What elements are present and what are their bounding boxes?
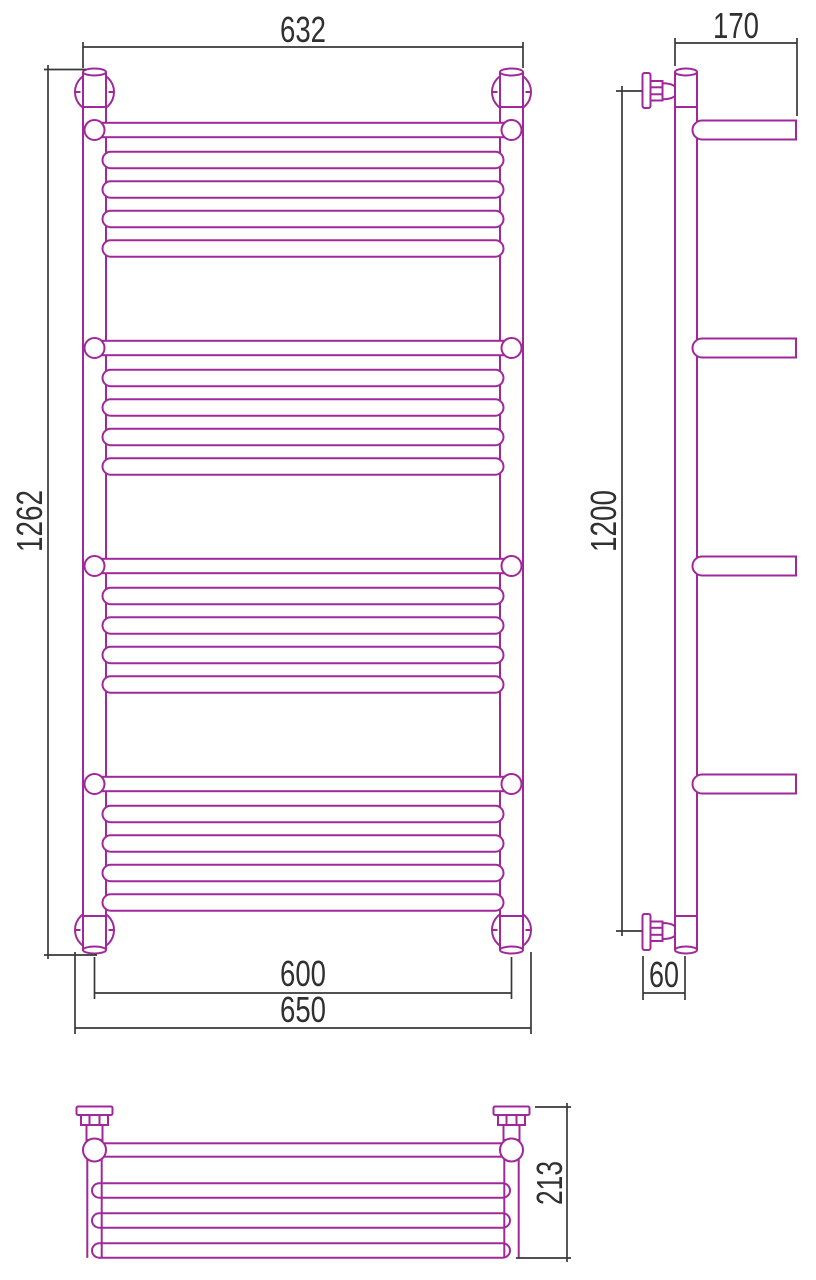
shelf-cross-bar bbox=[92, 1183, 510, 1197]
valve-hex-nut bbox=[651, 922, 663, 942]
shelf-bar-end bbox=[85, 774, 105, 794]
wall-flange bbox=[494, 1107, 530, 1116]
dim-label-side-valve: 60 bbox=[649, 954, 679, 995]
pipe-end bbox=[500, 69, 523, 76]
towel-rung bbox=[103, 865, 504, 882]
shelf-front-bar bbox=[95, 559, 512, 573]
towel-rung bbox=[103, 370, 504, 387]
dim-label-front-overall-width: 650 bbox=[280, 989, 326, 1030]
post-section bbox=[500, 1139, 523, 1162]
rung-projection-bar bbox=[95, 1143, 512, 1156]
shelf-cross-bar bbox=[92, 1213, 510, 1227]
towel-rung bbox=[103, 399, 504, 416]
shelf-front-bar bbox=[95, 123, 512, 137]
shelf-bar-end bbox=[85, 556, 105, 576]
towel-rung bbox=[103, 647, 504, 664]
shelf-arm bbox=[693, 775, 797, 794]
towel-rung bbox=[103, 181, 504, 198]
valve-hex-nut bbox=[81, 1115, 108, 1125]
towel-rung bbox=[103, 458, 504, 475]
shelf-bar-end bbox=[85, 338, 105, 358]
shelf-front-bar bbox=[95, 341, 512, 355]
towel-rung bbox=[103, 835, 504, 852]
shelf-bar-end bbox=[502, 556, 522, 576]
towel-rung bbox=[103, 806, 504, 823]
shelf-arm bbox=[693, 557, 797, 576]
dim-label-side-depth: 170 bbox=[713, 5, 759, 46]
shelf-arm bbox=[693, 339, 797, 358]
pipe-end bbox=[83, 947, 106, 954]
towel-rung bbox=[103, 152, 504, 169]
shelf-front-bar bbox=[95, 777, 512, 791]
dim-label-front-centers-width: 600 bbox=[280, 953, 326, 994]
wall-flange bbox=[643, 73, 651, 108]
drawing-canvas: 632 1262 600 650 170 1200 60 213 bbox=[0, 0, 816, 1280]
drawing-sheet: 632 1262 600 650 170 1200 60 213 bbox=[0, 0, 816, 1280]
shelf-bar-end bbox=[85, 120, 105, 140]
valve-hex-nut bbox=[651, 81, 663, 101]
post-section bbox=[83, 1139, 106, 1162]
dim-label-side-height: 1200 bbox=[583, 490, 624, 552]
wall-flange bbox=[643, 914, 651, 950]
valve-hex-nut bbox=[498, 1115, 525, 1125]
dim-label-front-height: 1262 bbox=[9, 490, 50, 552]
towel-rung bbox=[103, 588, 504, 605]
post-body bbox=[675, 72, 697, 950]
shelf-bar-end bbox=[502, 338, 522, 358]
shelf-bar-end bbox=[502, 774, 522, 794]
shelf-arm bbox=[693, 121, 797, 140]
towel-rung bbox=[103, 240, 504, 257]
front-view bbox=[75, 69, 532, 954]
side-view bbox=[643, 69, 797, 954]
towel-rung bbox=[103, 676, 504, 693]
shelf-cross-bar bbox=[92, 1243, 510, 1257]
towel-rung bbox=[103, 429, 504, 446]
pipe-end bbox=[83, 69, 106, 76]
wall-flange bbox=[77, 1107, 113, 1116]
pipe-end bbox=[500, 947, 523, 954]
dim-label-plan-depth: 213 bbox=[529, 1161, 570, 1205]
dim-label-front-top-width: 632 bbox=[280, 9, 326, 50]
towel-rung bbox=[103, 211, 504, 228]
shelf-bar-end bbox=[502, 120, 522, 140]
pipe-end bbox=[675, 69, 697, 76]
plan-view bbox=[77, 1107, 530, 1258]
pipe-end bbox=[675, 947, 697, 954]
towel-rung bbox=[103, 617, 504, 634]
towel-rung bbox=[103, 894, 504, 911]
